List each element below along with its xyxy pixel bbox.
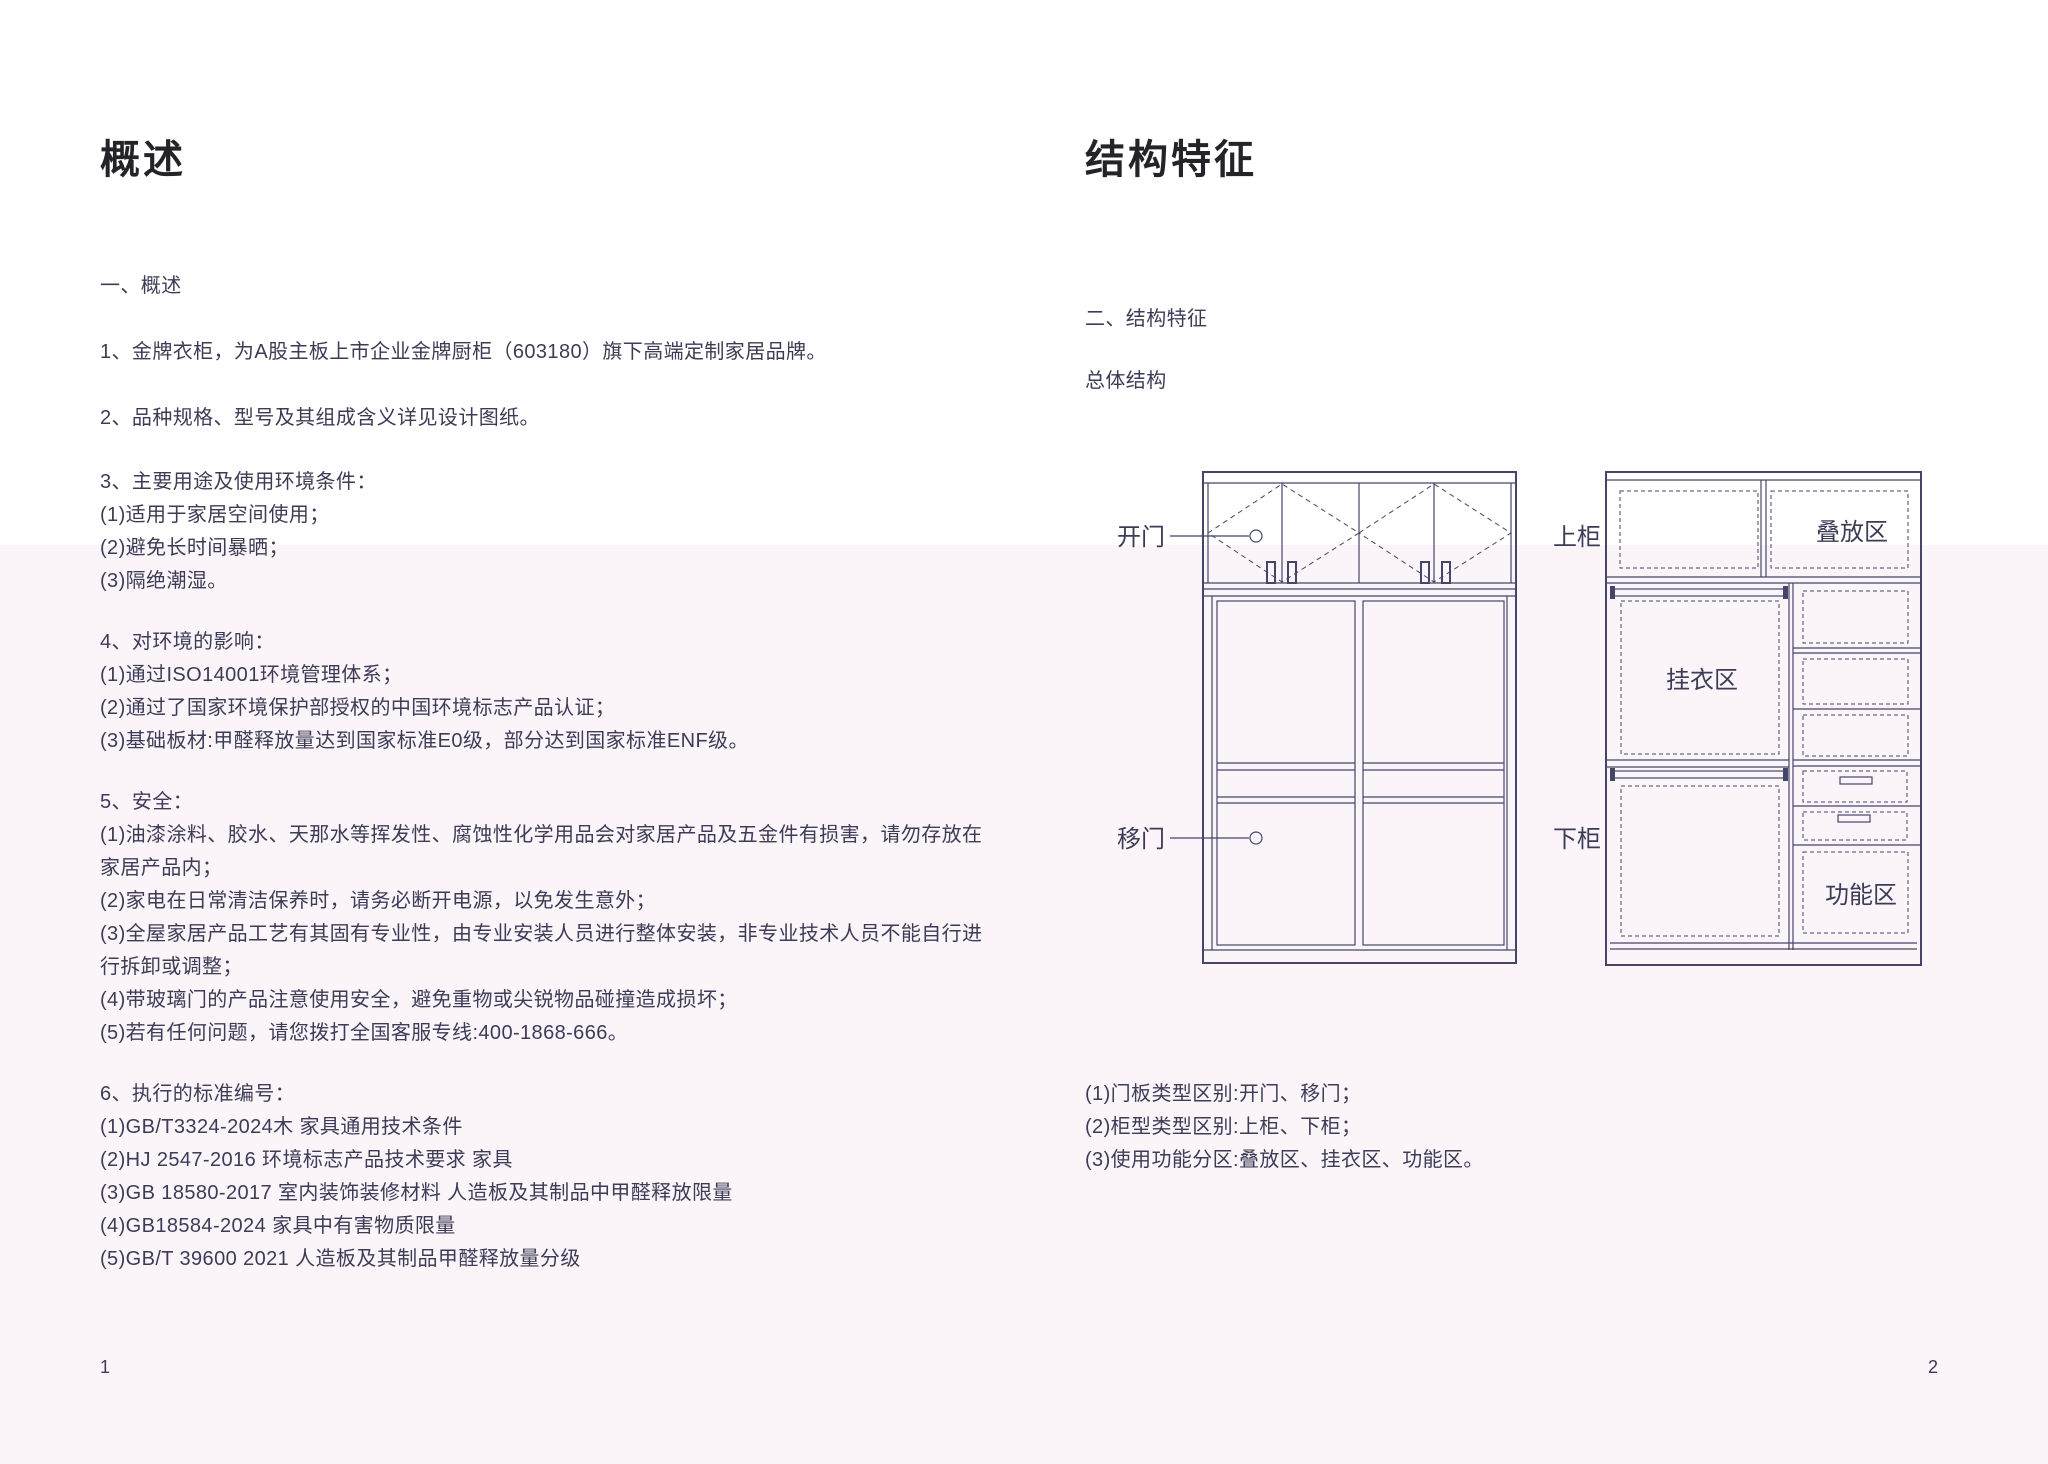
intro-item-brand: 1、金牌衣柜，为A股主板上市企业金牌厨柜（603180）旗下高端定制家居品牌。: [100, 336, 827, 369]
intro-item-specs: 2、品种规格、型号及其组成含义详见设计图纸。: [100, 402, 540, 435]
label-hanging-zone: 挂衣区: [1666, 667, 1738, 694]
label-sliding-door: 移门: [1117, 826, 1165, 853]
text-line: (2)通过了国家环境保护部授权的中国环境标志产品认证；: [100, 692, 749, 725]
text-line: (4)带玻璃门的产品注意使用安全，避免重物或尖锐物品碰撞造成损坏；: [100, 984, 982, 1017]
structure-notes-paragraph: (1)门板类型区别:开门、移门；(2)柜型类型区别:上柜、下柜；(3)使用功能分…: [1085, 1078, 1484, 1177]
text-line: 家居产品内；: [100, 852, 982, 885]
text-line: 5、安全：: [100, 786, 982, 819]
text-line: (1)GB/T3324-2024木 家具通用技术条件: [100, 1111, 733, 1144]
section-heading-structure: 二、结构特征: [1085, 303, 1207, 336]
text-line: 3、主要用途及使用环境条件：: [100, 466, 377, 499]
section-heading-overview: 一、概述: [100, 270, 182, 303]
text-line: (3)隔绝潮湿。: [100, 565, 377, 598]
text-line: (5)GB/T 39600 2021 人造板及其制品甲醛释放量分级: [100, 1243, 733, 1276]
standards-paragraph: 6、执行的标准编号：(1)GB/T3324-2024木 家具通用技术条件(2)H…: [100, 1078, 733, 1276]
page-title-structure: 结构特征: [1085, 138, 1257, 182]
hanging-rod-top: [1613, 589, 1785, 596]
text-line: (3)GB 18580-2017 室内装饰装修材料 人造板及其制品中甲醛释放限量: [100, 1177, 733, 1210]
manual-spread: 开门 移门 上柜 下柜 叠放区 挂衣区 功能区 概述 一、概述 1、金牌衣柜，为…: [0, 0, 2048, 1464]
label-upper-cabinet: 上柜: [1553, 524, 1601, 551]
swing-door-pointer: [1170, 530, 1262, 542]
text-line: 6、执行的标准编号：: [100, 1078, 733, 1111]
text-line: (1)油漆涂料、胶水、天那水等挥发性、腐蚀性化学用品会对家居产品及五金件有损害，…: [100, 819, 982, 852]
usage-conditions-paragraph: 3、主要用途及使用环境条件：(1)适用于家居空间使用；(2)避免长时间暴晒；(3…: [100, 466, 377, 598]
sliding-door-pointer: [1170, 832, 1262, 844]
drawer-handle-1: [1840, 777, 1872, 784]
text-line: (3)基础板材:甲醛释放量达到国家标准E0级，部分达到国家标准ENF级。: [100, 725, 749, 758]
text-line: (3)使用功能分区:叠放区、挂衣区、功能区。: [1085, 1144, 1484, 1177]
subsection-heading-overall-structure: 总体结构: [1085, 365, 1167, 398]
page-number-left: 1: [100, 1356, 110, 1378]
hanging-rod-middle: [1613, 771, 1785, 778]
environment-impact-paragraph: 4、对环境的影响：(1)通过ISO14001环境管理体系；(2)通过了国家环境保…: [100, 626, 749, 758]
text-line: (2)柜型类型区别:上柜、下柜；: [1085, 1111, 1484, 1144]
text-line: (5)若有任何问题，请您拨打全国客服专线:400-1868-666。: [100, 1017, 982, 1050]
text-line: (4)GB18584-2024 家具中有害物质限量: [100, 1210, 733, 1243]
text-line: 4、对环境的影响：: [100, 626, 749, 659]
label-lower-cabinet: 下柜: [1553, 826, 1601, 853]
text-line: 行拆卸或调整；: [100, 951, 982, 984]
text-line: (1)通过ISO14001环境管理体系；: [100, 659, 749, 692]
page-title-overview: 概述: [100, 138, 186, 182]
left-wardrobe-elevation: [1170, 472, 1516, 963]
label-swing-door: 开门: [1117, 524, 1165, 551]
drawer-handle-2: [1838, 815, 1870, 822]
label-function-zone: 功能区: [1825, 882, 1897, 909]
safety-paragraph: 5、安全：(1)油漆涂料、胶水、天那水等挥发性、腐蚀性化学用品会对家居产品及五金…: [100, 786, 982, 1050]
text-line: (3)全屋家居产品工艺有其固有专业性，由专业安装人员进行整体安装，非专业技术人员…: [100, 918, 982, 951]
page-number-right: 2: [1928, 1356, 1938, 1378]
text-line: (2)HJ 2547-2016 环境标志产品技术要求 家具: [100, 1144, 733, 1177]
text-line: (1)门板类型区别:开门、移门；: [1085, 1078, 1484, 1111]
text-line: (2)家电在日常清洁保养时，请务必断开电源，以免发生意外；: [100, 885, 982, 918]
label-stacking-zone: 叠放区: [1816, 519, 1888, 546]
text-line: (2)避免长时间暴晒；: [100, 532, 377, 565]
text-line: (1)适用于家居空间使用；: [100, 499, 377, 532]
